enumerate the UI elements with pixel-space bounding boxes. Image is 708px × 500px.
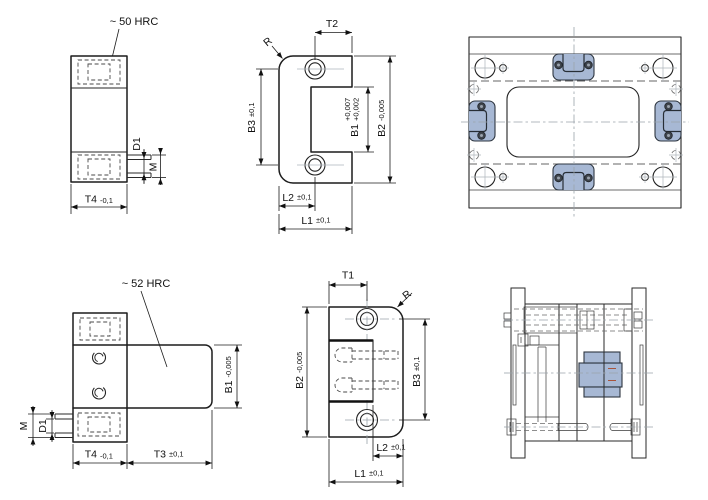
t3-label: T3 bbox=[154, 449, 166, 461]
b3-label: B3 bbox=[411, 374, 423, 387]
b1-dimension: B1 +0,007 +0,002 bbox=[343, 87, 374, 152]
d1-label: D1 bbox=[131, 137, 143, 151]
d1-dimension: D1 bbox=[131, 137, 144, 184]
leader-line bbox=[113, 29, 120, 56]
mold-section-view bbox=[504, 288, 653, 458]
b2-tolerance: -0,005 bbox=[377, 100, 386, 121]
leader-line bbox=[141, 291, 167, 367]
b3-tolerance: ±0,1 bbox=[247, 102, 256, 117]
t4-dimension: T4 -0,1 bbox=[71, 184, 127, 214]
l2-label: L2 bbox=[376, 442, 388, 454]
b3-tolerance: ±0,1 bbox=[412, 356, 421, 371]
l1-tolerance: ±0,1 bbox=[316, 216, 331, 225]
interlock-section bbox=[579, 352, 622, 397]
b2-tolerance: -0,005 bbox=[295, 352, 304, 373]
plate-slot-right bbox=[640, 345, 643, 405]
m-dimension: M bbox=[148, 148, 167, 185]
lock-screw-center bbox=[557, 177, 560, 180]
t2-label: T2 bbox=[326, 18, 338, 30]
part-outline bbox=[329, 307, 403, 437]
t2-dimension: T2 bbox=[315, 18, 352, 60]
l2-label: L2 bbox=[282, 192, 294, 204]
lock-screw-center bbox=[480, 134, 483, 137]
lock-tongue bbox=[563, 54, 584, 72]
t1-dimension: T1 bbox=[329, 270, 367, 305]
b2-label: B2 bbox=[376, 124, 388, 137]
counterbored-hole-top bbox=[345, 309, 396, 330]
b3-label: B3 bbox=[246, 120, 258, 133]
counterbored-hole-bottom bbox=[345, 410, 396, 431]
mold-plate-plan-view bbox=[461, 27, 689, 218]
interlock-flange-top bbox=[584, 352, 620, 363]
part-outline bbox=[71, 56, 127, 182]
l1-label: L1 bbox=[301, 215, 313, 227]
lock-screw-center bbox=[587, 177, 590, 180]
radius-callout: R bbox=[261, 35, 282, 59]
t3-tolerance: ±0,1 bbox=[169, 450, 184, 459]
lock-tongue bbox=[469, 111, 487, 132]
d1-label: D1 bbox=[37, 419, 49, 433]
t4-t3-dimensions: T4 -0,1 T3 ±0,1 bbox=[73, 410, 212, 469]
side-lock-top bbox=[553, 54, 594, 80]
r-label: R bbox=[400, 288, 414, 302]
b1-label: B1 bbox=[223, 380, 235, 393]
t4-tolerance: -0,1 bbox=[100, 451, 113, 460]
m-label: M bbox=[148, 163, 160, 172]
tongue-edges bbox=[329, 340, 373, 403]
counterbored-hole-top bbox=[297, 59, 344, 79]
hardness-note-50: ~ 50 HRC bbox=[110, 16, 159, 56]
lock-tongue bbox=[563, 173, 584, 191]
counterbored-hole-bottom bbox=[297, 155, 344, 175]
m-label: M bbox=[18, 422, 30, 431]
side-lock-bottom bbox=[553, 164, 594, 190]
lock-screw-center bbox=[667, 105, 670, 108]
b1-tolerance-lower: +0,002 bbox=[352, 98, 361, 121]
leader-line bbox=[272, 46, 283, 59]
l2-dimension: L2 ±0,1 bbox=[279, 177, 315, 211]
lock-screw-center bbox=[667, 134, 670, 137]
part-outline bbox=[73, 313, 127, 442]
lock-screw-center bbox=[480, 105, 483, 108]
b1-dimension: B1 -0,005 bbox=[214, 345, 242, 408]
interlock-body bbox=[579, 363, 622, 387]
b3-dimension: B3 ±0,1 bbox=[246, 69, 278, 165]
drawing-canvas: D1 M T4 -0,1 ~ 50 HRC bbox=[0, 0, 708, 500]
hidden-thread-holes bbox=[78, 60, 120, 179]
t4-label: T4 bbox=[85, 449, 97, 461]
hidden-thread-holes bbox=[78, 318, 120, 436]
side-lock-right bbox=[655, 101, 681, 141]
thread-circles bbox=[90, 348, 108, 401]
l2-tolerance: ±0,1 bbox=[391, 443, 406, 452]
interlock-flange-bottom bbox=[584, 387, 620, 397]
hardness-50-label: ~ 50 HRC bbox=[110, 16, 159, 28]
radius-callout: R bbox=[398, 288, 415, 307]
l1-tolerance: ±0,1 bbox=[369, 469, 384, 478]
lock-screw-center bbox=[587, 64, 590, 67]
upper-screw bbox=[518, 334, 539, 346]
plate-slot-left bbox=[513, 345, 516, 405]
female-lock-side-view: D1 M T4 -0,1 ~ 50 HRC bbox=[71, 16, 166, 214]
hidden-screws bbox=[335, 348, 398, 392]
t4-tolerance: -0,1 bbox=[100, 196, 113, 205]
t1-label: T1 bbox=[342, 270, 354, 282]
lock-tongue bbox=[664, 111, 682, 132]
b1-label: B1 bbox=[349, 124, 361, 137]
b1-tolerance: -0,005 bbox=[224, 356, 233, 377]
hardness-52-label: ~ 52 HRC bbox=[122, 278, 171, 290]
hardness-note-52: ~ 52 HRC bbox=[122, 278, 171, 367]
b2-dimension: B2 -0,005 bbox=[294, 307, 327, 437]
l1-label: L1 bbox=[354, 468, 366, 480]
t4-label: T4 bbox=[85, 194, 97, 206]
ejector-rails bbox=[538, 347, 546, 422]
b2-label: B2 bbox=[294, 376, 306, 389]
female-lock-front-view: T2 R B3 ±0,1 B1 +0,007 +0,002 bbox=[246, 18, 396, 234]
male-lock-side-view: M D1 B1 -0,005 bbox=[18, 278, 242, 469]
side-lock-left bbox=[469, 101, 495, 141]
l2-tolerance: ±0,1 bbox=[297, 193, 312, 202]
male-lock-front-view: T1 R B2 -0,005 B3 ±0,1 bbox=[294, 270, 430, 488]
lock-screw-center bbox=[557, 64, 560, 67]
screw-stub bbox=[55, 414, 73, 438]
technical-drawing-page: D1 M T4 -0,1 ~ 50 HRC bbox=[0, 0, 708, 500]
